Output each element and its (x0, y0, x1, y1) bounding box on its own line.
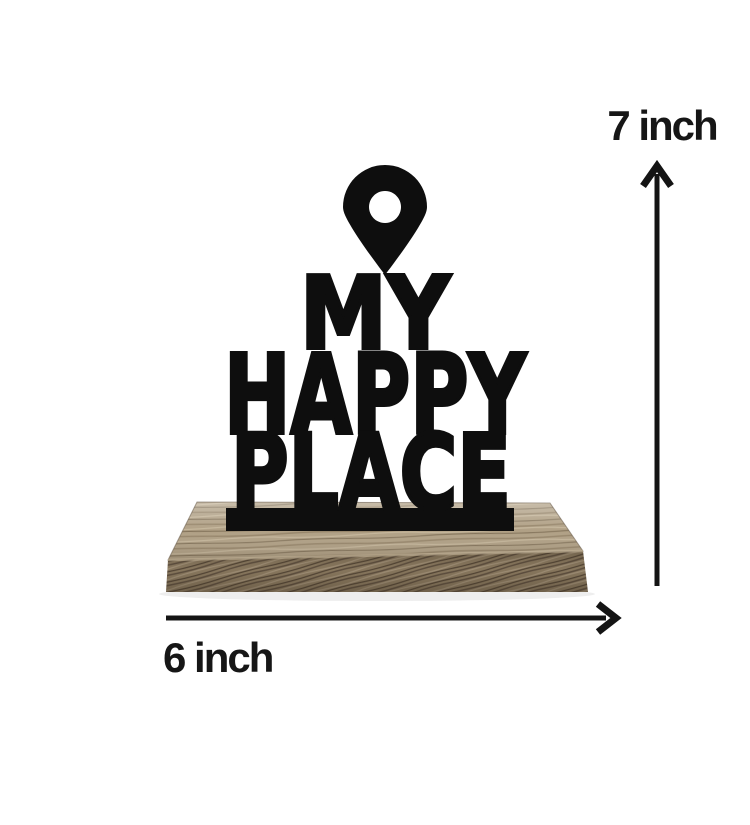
sign-line-3: PLACE (231, 412, 511, 534)
height-dimension-label: 7 inch (600, 105, 724, 147)
product-image: MY HAPPY PLACE 7 inch 6 inch (0, 0, 750, 825)
width-dimension-label: 6 inch (163, 637, 272, 679)
height-dimension-arrow (643, 166, 671, 586)
width-dimension-arrow (166, 604, 616, 632)
sign-cutout: MY HAPPY PLACE (224, 165, 527, 534)
